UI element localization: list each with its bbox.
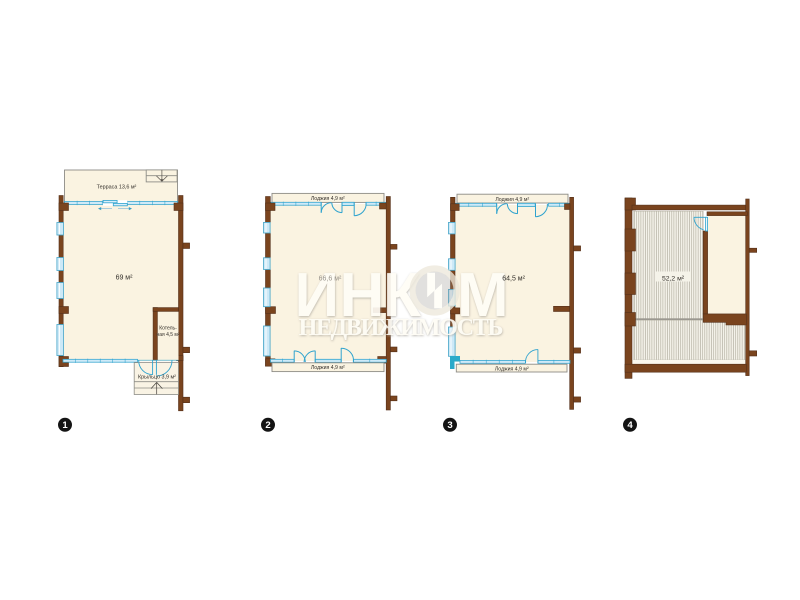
svg-text:Крыльцо 3,9 м²: Крыльцо 3,9 м² (138, 375, 176, 381)
svg-text:69 м²: 69 м² (116, 275, 134, 282)
svg-text:52,2 м²: 52,2 м² (662, 276, 685, 283)
svg-text:66,6 м²: 66,6 м² (319, 275, 342, 282)
svg-text:Лоджия 4,9 м²: Лоджия 4,9 м² (495, 367, 529, 373)
svg-text:1: 1 (62, 420, 68, 431)
svg-text:Лоджия 4,9 м²: Лоджия 4,9 м² (495, 197, 529, 203)
svg-text:3: 3 (447, 420, 452, 431)
svg-text:64,5 м²: 64,5 м² (502, 275, 525, 282)
svg-text:4: 4 (627, 420, 633, 431)
svg-text:Котель-: Котель- (159, 326, 177, 332)
svg-text:Лоджия 4,9 м²: Лоджия 4,9 м² (311, 365, 345, 371)
svg-text:ная 4,5 м²: ная 4,5 м² (156, 332, 179, 338)
svg-text:2: 2 (265, 420, 270, 431)
svg-text:Лоджия 4,9 м²: Лоджия 4,9 м² (311, 196, 345, 202)
svg-text:Терраса 13,6 м²: Терраса 13,6 м² (97, 185, 137, 191)
svg-text:НЕДВИЖИМОСТЬ: НЕДВИЖИМОСТЬ (299, 315, 503, 341)
